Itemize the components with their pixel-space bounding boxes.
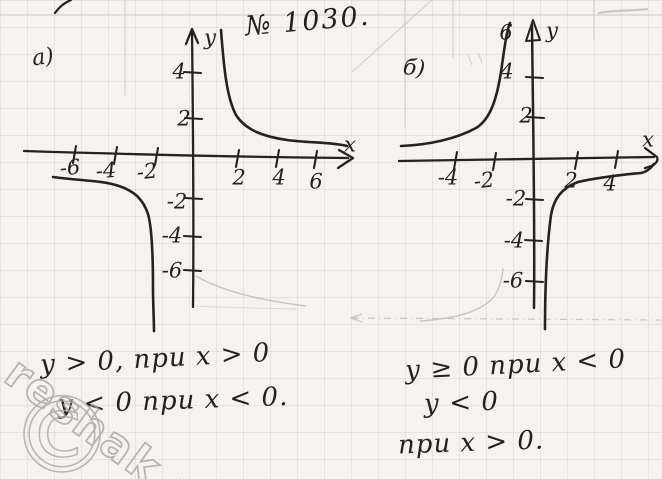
graph-b-conclusion-line3: при х > 0. [398, 427, 545, 458]
graph-b-conclusion-line2: у < 0 [424, 389, 500, 418]
page-title: № 1030. [244, 3, 371, 41]
graph-b-x-tick-2: 2 [564, 171, 577, 192]
graph-a-y-tick--2: -2 [167, 192, 187, 213]
graph-b-y-tick--2: -2 [506, 189, 526, 210]
handwritten-labels: № 1030. а) y x -6 -4 -2 2 4 6 4 2 -2 -4 … [0, 0, 662, 479]
graph-a-conclusion-line2: у < 0 при х < 0. [58, 384, 289, 418]
graph-b-panel-label: б) [402, 57, 426, 81]
graph-a-x-tick--2: -2 [136, 160, 159, 183]
graph-b-y-tick--4: -4 [504, 231, 524, 252]
graph-a-y-tick--4: -4 [162, 226, 182, 247]
graph-b-y-axis-label: y [546, 21, 558, 42]
graph-a-y-tick-4: 4 [172, 62, 185, 83]
graph-a-panel-label: а) [31, 46, 56, 71]
graph-a-y-axis-label: y [204, 28, 216, 49]
graph-a-y-tick--6: -6 [162, 261, 182, 282]
graph-a-y-tick-2: 2 [177, 109, 190, 130]
graph-a-x-tick-6: 6 [309, 172, 322, 193]
graph-a-x-tick--4: -4 [95, 160, 117, 182]
graph-b-y-tick-4: 4 [500, 62, 513, 83]
notebook-page: № 1030. а) y x -6 -4 -2 2 4 6 4 2 -2 -4 … [0, 0, 662, 479]
graph-b-x-tick--2: -2 [473, 169, 496, 192]
graph-a-x-tick--6: -6 [59, 157, 81, 179]
graph-b-x-axis-label: x [642, 130, 654, 151]
graph-b-y-tick-2: 2 [519, 106, 532, 127]
graph-b-x-tick--4: -4 [438, 168, 458, 189]
graph-a-x-tick-2: 2 [232, 168, 245, 189]
graph-b-x-tick-4: 4 [603, 174, 616, 195]
graph-a-x-axis-label: x [344, 135, 356, 156]
graph-a-x-tick-4: 4 [272, 168, 285, 189]
graph-b-y-tick--6: -6 [503, 271, 523, 292]
graph-a-conclusion-line1: у > 0, при х > 0 [39, 340, 270, 378]
graph-b-conclusion-line1: у ≥ 0 при х < 0 [404, 346, 626, 384]
graph-b-y-tick-6: 6 [499, 23, 512, 44]
